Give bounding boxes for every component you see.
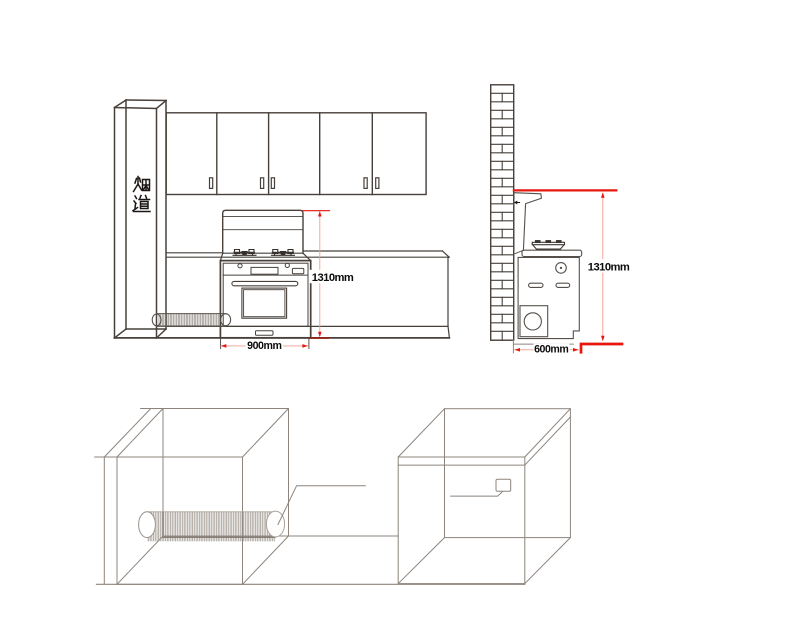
svg-text:1310mm: 1310mm xyxy=(588,262,630,274)
svg-text:900mm: 900mm xyxy=(247,340,281,352)
svg-text:600mm: 600mm xyxy=(534,344,568,356)
svg-text:1310mm: 1310mm xyxy=(312,272,354,284)
